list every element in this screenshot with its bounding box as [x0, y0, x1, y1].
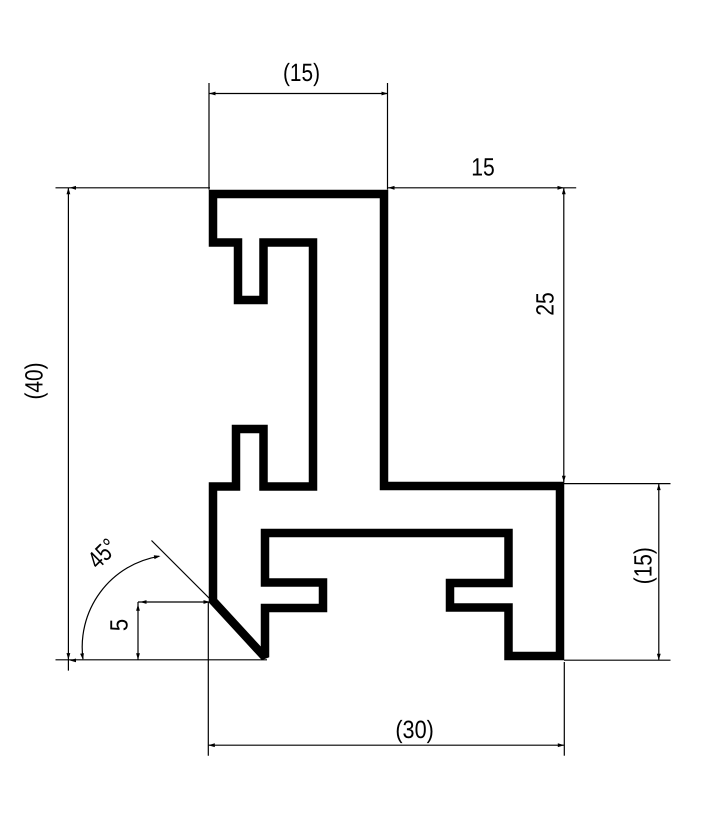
svg-text:25: 25 — [532, 292, 560, 316]
svg-text:5: 5 — [106, 619, 134, 632]
svg-text:(30): (30) — [395, 716, 434, 744]
svg-text:(40): (40) — [21, 363, 49, 400]
svg-text:(15): (15) — [283, 59, 320, 87]
svg-text:15: 15 — [471, 154, 495, 182]
svg-text:(15): (15) — [630, 547, 658, 584]
